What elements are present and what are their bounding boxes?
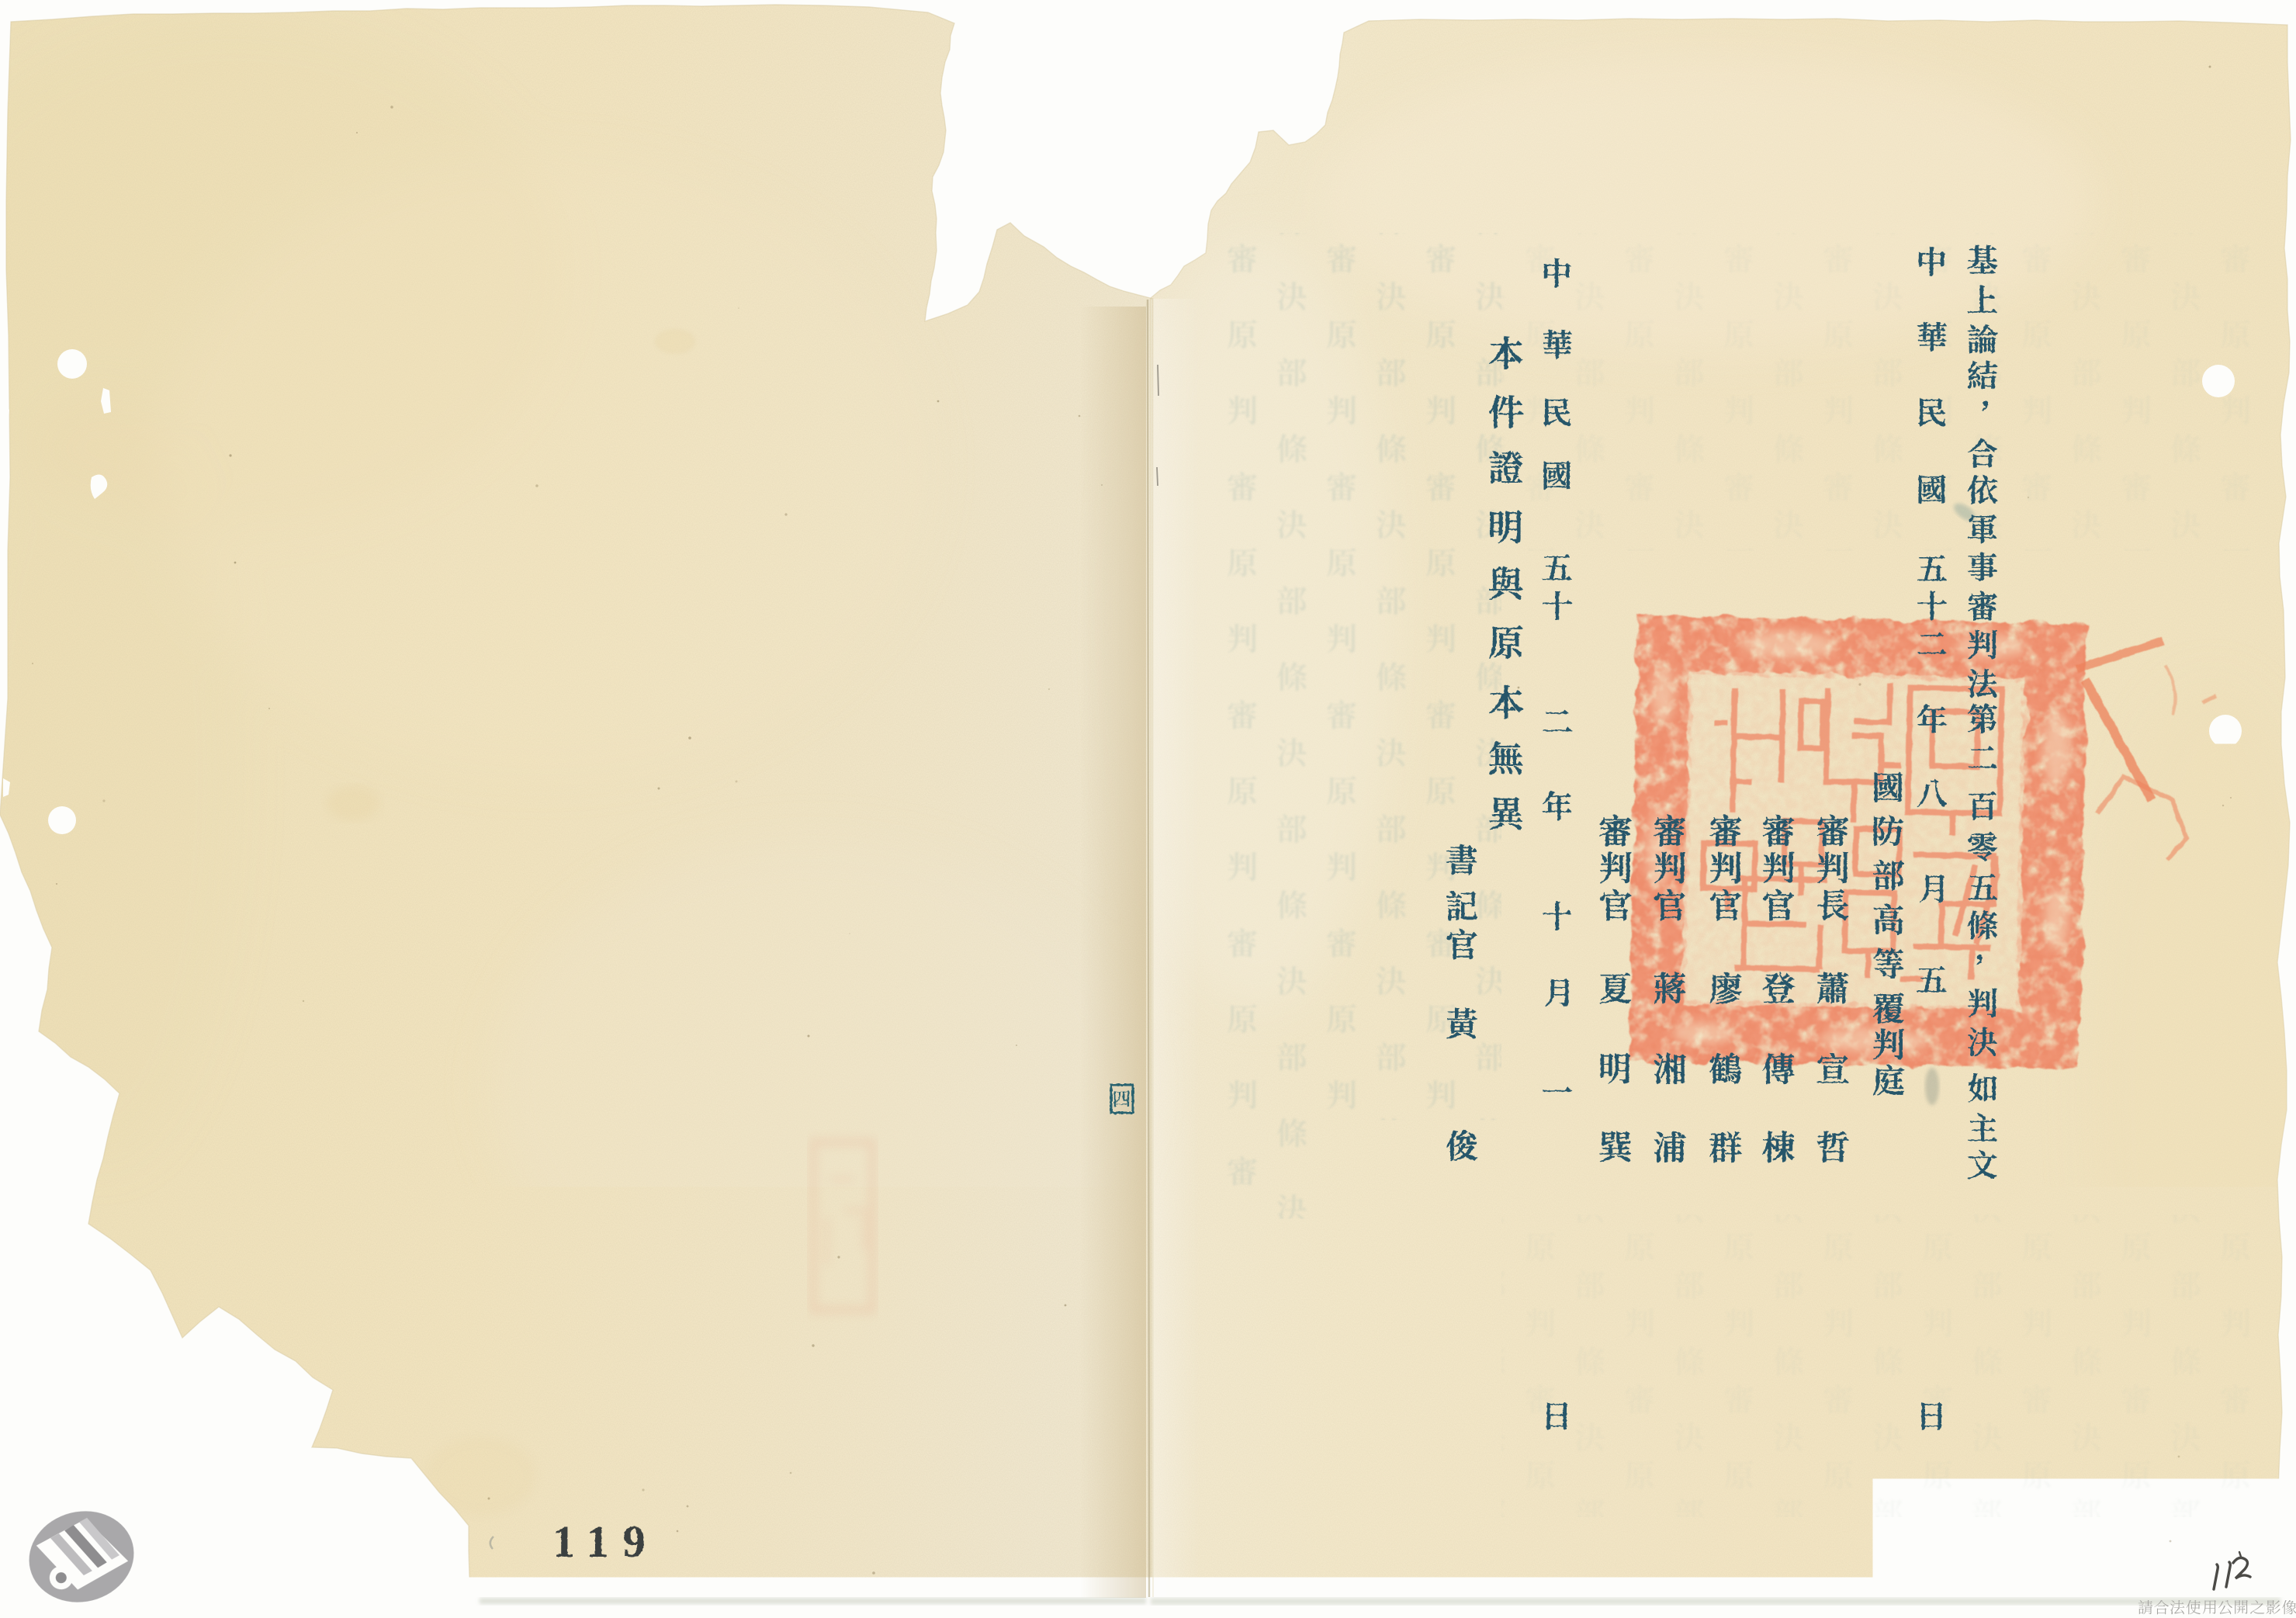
svg-text:119: 119 [552, 1516, 660, 1567]
